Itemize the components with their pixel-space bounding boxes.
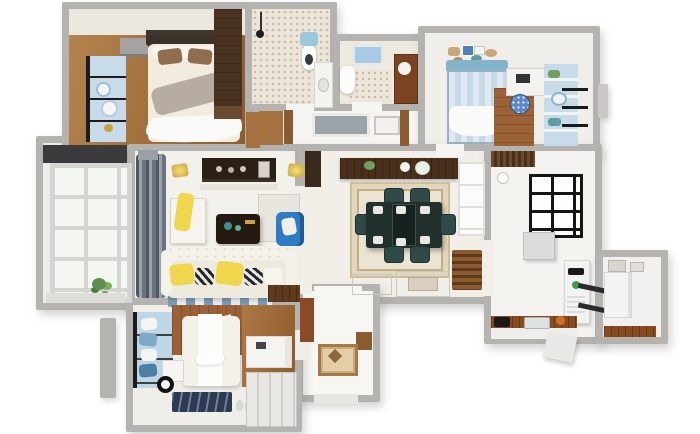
kitchen-pendant-light [497, 172, 509, 184]
dining-plate-t3 [420, 206, 430, 214]
dining-plate-b1 [373, 236, 383, 244]
dining-sideboard [340, 158, 458, 179]
master-wardrobe [214, 9, 242, 109]
kids-frame-4 [485, 49, 497, 57]
master-shelf-plate-2 [101, 100, 118, 117]
dining-doorway-cabinet [305, 151, 321, 187]
living-table-gold-tray [245, 220, 255, 224]
bedroom2-seat-pillow-3 [141, 349, 157, 361]
master-shelf-plate-1 [96, 82, 111, 97]
dining-chair-bottom-1 [384, 246, 404, 263]
apartment-3d-floorplan [0, 0, 700, 434]
bedroom2-bed-pillow [196, 351, 225, 366]
kids-rack-bar-1 [562, 88, 588, 91]
entry-shoe-cabinet [300, 298, 314, 342]
bedroom2-clock-face [161, 380, 170, 389]
kbalcony-frame-2 [630, 262, 644, 272]
master-yellow-decor [104, 124, 113, 132]
entry-side-cabinet [356, 332, 372, 350]
kbalcony-cabinet [604, 272, 632, 318]
kitchen-orange-pot [556, 316, 565, 325]
dining-radiator-bench [452, 250, 482, 290]
kids-rack-bar-2 [562, 106, 588, 109]
wall-tab-right [598, 84, 608, 118]
dining-chair-bottom-2 [410, 246, 430, 263]
toilet-tank-blue [300, 32, 318, 46]
dining-window-column [458, 162, 485, 236]
living-wood-bench [268, 285, 300, 302]
dining-sideboard-plate-2 [415, 161, 430, 175]
opening-master-hall [246, 112, 260, 148]
hall-framed-print [374, 116, 400, 135]
kids-frame-2 [462, 45, 474, 56]
bedroom2-seat-pillow-4 [138, 363, 157, 378]
kbalcony-frame-1 [608, 260, 626, 272]
bath2-skylight [352, 44, 384, 66]
dining-sideboard-plant [364, 161, 375, 170]
shower-pipe [260, 12, 262, 32]
balcony-grid-window [50, 163, 132, 303]
living-ac-vent [138, 150, 158, 160]
kids-shelf-item-green [548, 70, 560, 78]
bedroom2-wardrobe [246, 372, 297, 427]
dining-plate-t2 [396, 206, 406, 214]
dining-floor-medallion-inlay [408, 277, 438, 291]
kids-shelf-item-plate [551, 92, 567, 106]
hall-wood-floor-sliver [259, 111, 283, 145]
hall-door-frame-left [284, 110, 293, 144]
kids-frame-1 [448, 47, 460, 56]
living-pillow-checker-1 [194, 267, 214, 285]
kids-frame-3 [474, 46, 485, 55]
living-table-cup-1 [224, 222, 232, 230]
living-sconce-right [287, 163, 304, 178]
toilet-seat [305, 54, 313, 65]
balcony-plant [92, 278, 106, 290]
kbalcony-wood-counter [604, 326, 656, 337]
kitchen-cooktop [494, 317, 510, 327]
bedroom2-navy-rug [172, 392, 232, 412]
shower-head [256, 30, 264, 38]
kitchen-upper-cabinet [523, 232, 555, 260]
bath1-sink-basin [318, 78, 329, 92]
living-wall-ledge [200, 184, 278, 190]
bath2-toilet [340, 66, 355, 94]
dining-plate-b3 [420, 236, 430, 244]
bedroom2-seat-pillow-1 [140, 317, 158, 331]
kitchen-ceiling-slats [491, 151, 535, 167]
living-sconce-left [171, 163, 189, 178]
living-pillow-yellow-1 [169, 263, 195, 286]
dining-plate-b2 [396, 238, 406, 246]
kitchen-fridge-magnet-helicopter [568, 268, 584, 275]
kids-chair [510, 94, 530, 114]
master-dresser [120, 38, 148, 57]
bedroom2-slippers [236, 400, 243, 411]
living-console-frame [258, 161, 270, 178]
hall-panoramic-art [312, 113, 370, 137]
living-pillow-white [264, 268, 282, 284]
kids-desk-laptop [516, 74, 530, 83]
balcony-dark-ceiling [43, 145, 127, 163]
entry-door-threshold [314, 394, 358, 404]
living-console-decor [216, 166, 222, 172]
balcony-sill [46, 293, 126, 303]
kids-shelf-item-teal [548, 118, 561, 126]
bath2-vanity-sink [398, 62, 411, 75]
living-armchair-pillow [281, 217, 298, 236]
opening-kids-hall [436, 144, 464, 156]
master-brown-pillow-2 [187, 48, 212, 65]
bedroom2-corner-desk [246, 336, 292, 368]
bedroom2-seat-pillow-2 [138, 332, 157, 347]
hall-door-frame-right [400, 110, 409, 146]
wall-stub-left [100, 318, 116, 398]
dining-sideboard-plate-1 [400, 162, 410, 172]
master-wardrobe-bench [214, 106, 242, 119]
living-pillow-checker-2 [243, 267, 263, 286]
master-brown-pillow-1 [157, 48, 183, 66]
living-table-cup-2 [235, 225, 241, 231]
kids-rack-bar-3 [562, 124, 588, 127]
kitchen-sink [524, 317, 550, 329]
bedroom2-bed-canopy [198, 314, 222, 386]
dining-plate-t1 [373, 206, 383, 214]
kitchen-peninsula [543, 331, 578, 363]
living-pillow-yellow-2 [215, 260, 245, 286]
dining-floor-inlay-1 [352, 274, 392, 295]
kitchen-grid-window [529, 174, 583, 238]
dining-chair-right [440, 214, 456, 235]
bedroom2-desk-item [256, 342, 266, 349]
